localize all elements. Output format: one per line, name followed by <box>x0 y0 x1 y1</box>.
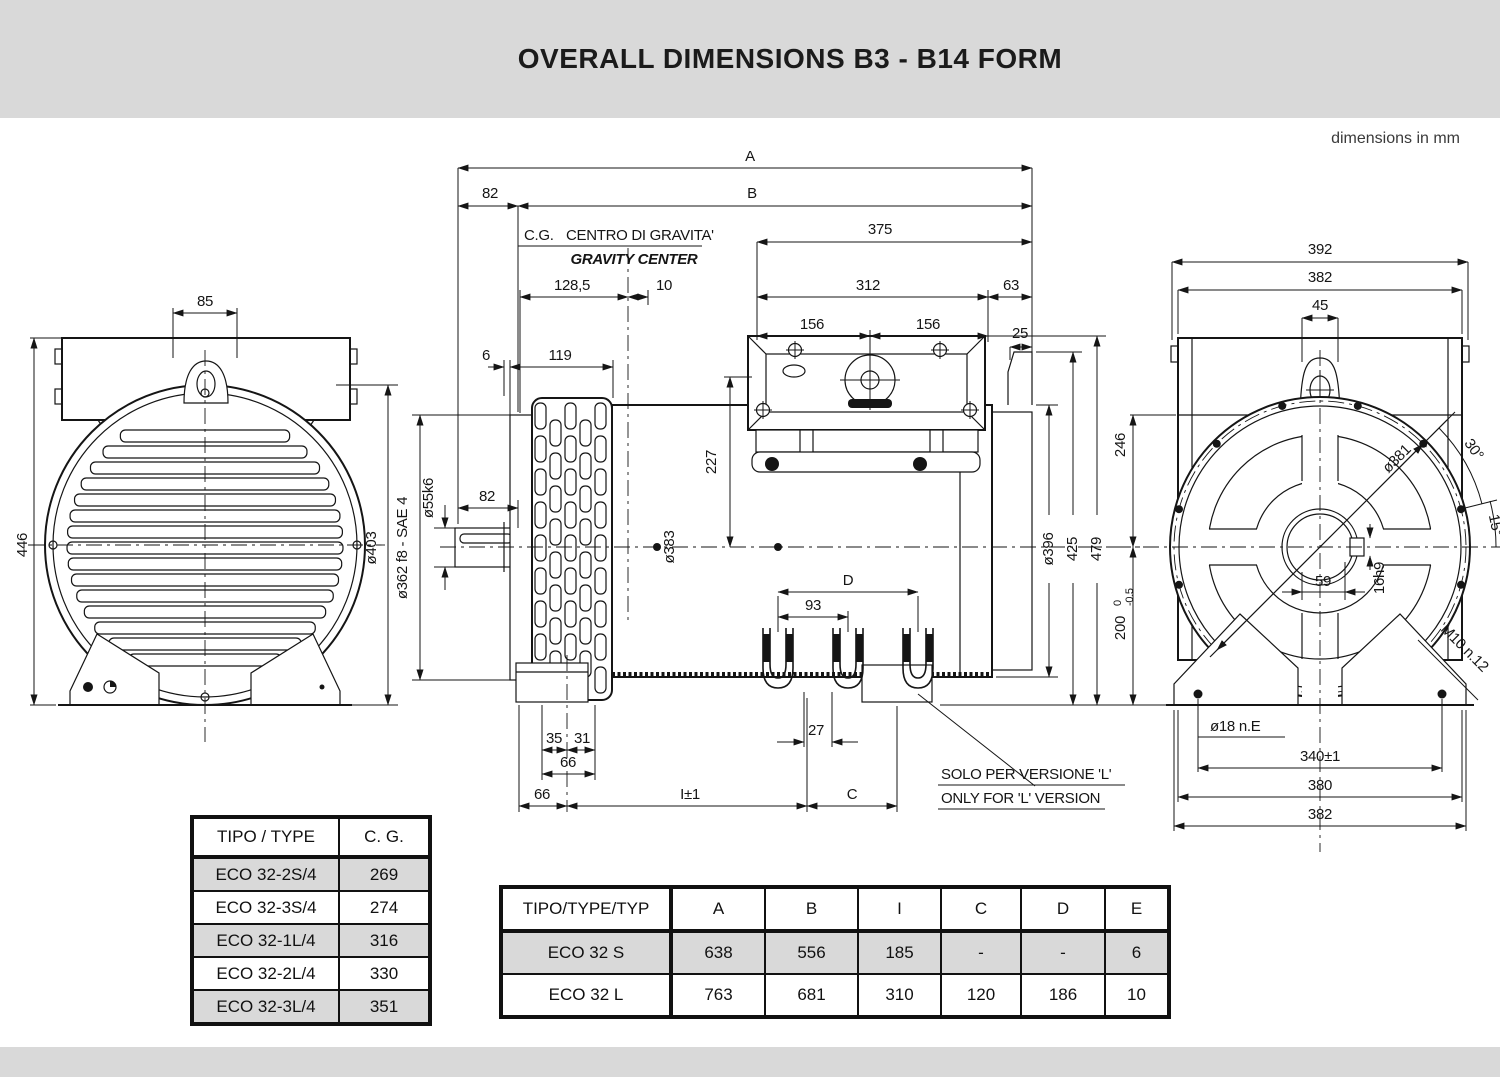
dim-6: 6 <box>482 347 490 364</box>
dim-10: 10 <box>656 277 672 294</box>
dim-63: 63 <box>1003 277 1019 294</box>
cell: 186 <box>1021 974 1105 1017</box>
dim-200: 200 <box>1112 616 1129 640</box>
header-cell: A <box>671 887 765 931</box>
cg-english: GRAVITY CENTER <box>571 251 698 268</box>
dim-45: 45 <box>1312 297 1328 314</box>
dim-A: A <box>745 148 755 165</box>
dim-227: 227 <box>703 450 720 474</box>
dim-200-tol-lo: -0.5 <box>1124 588 1136 606</box>
cell-cg: 330 <box>339 957 430 990</box>
cell: 185 <box>858 931 941 974</box>
cell: 10 <box>1105 974 1169 1017</box>
cg-table: TIPO / TYPE C. G. ECO 32-2S/4 269 ECO 32… <box>190 815 432 1026</box>
note-italian: SOLO PER VERSIONE 'L' <box>941 766 1112 783</box>
dim-156-a: 156 <box>800 316 824 333</box>
table-row: ECO 32 S 638 556 185 - - 6 <box>501 931 1169 974</box>
cell-type: ECO 32-2L/4 <box>192 957 339 990</box>
cell-type: ECO 32-2S/4 <box>192 857 339 891</box>
cg-table-header-type: TIPO / TYPE <box>192 817 339 857</box>
dim-392: 392 <box>1308 241 1332 258</box>
cell-cg: 274 <box>339 891 430 924</box>
table-row: ECO 32-3S/4 274 <box>192 891 430 924</box>
terminal-box-side <box>748 336 985 472</box>
header-cell: D <box>1021 887 1105 931</box>
cell: 310 <box>858 974 941 1017</box>
dim-119: 119 <box>548 347 571 364</box>
dim-C: C <box>847 786 858 803</box>
dim-382-top: 382 <box>1308 269 1332 286</box>
dimension-table: TIPO/TYPE/TYP A B I C D E ECO 32 S 638 5… <box>499 885 1171 1019</box>
dim-flange: ø362 f8 - SAE 4 <box>394 497 411 599</box>
table-row: ECO 32-3L/4 351 <box>192 990 430 1024</box>
table-row: ECO 32-2L/4 330 <box>192 957 430 990</box>
dim-66-b: 66 <box>534 786 550 803</box>
note-english: ONLY FOR 'L' VERSION <box>941 790 1100 807</box>
dim-246: 246 <box>1112 433 1129 457</box>
header-cell: B <box>765 887 858 931</box>
dim-25: 25 <box>1012 325 1028 342</box>
dim-18: ø18 n.E <box>1210 718 1261 735</box>
cell-cg: 351 <box>339 990 430 1024</box>
drawing-sheet: OVERALL DIMENSIONS B3 - B14 FORM dimensi… <box>0 0 1500 1077</box>
dim-35: 35 <box>546 730 562 747</box>
dim-200-group: 200 0 -0.5 <box>1112 588 1136 640</box>
dim-383: ø383 <box>661 531 678 564</box>
dim-shaft: ø55k6 <box>420 478 437 518</box>
header-cell: E <box>1105 887 1169 931</box>
dim-31: 31 <box>574 730 590 747</box>
side-front-foot <box>516 663 588 702</box>
cell: 681 <box>765 974 858 1017</box>
table-row: ECO 32-2S/4 269 <box>192 857 430 891</box>
dim-479: 479 <box>1088 537 1105 561</box>
table-row: ECO 32-1L/4 316 <box>192 924 430 957</box>
dim-66-a: 66 <box>560 754 576 771</box>
cell: 638 <box>671 931 765 974</box>
dim-312: 312 <box>856 277 880 294</box>
cell: 556 <box>765 931 858 974</box>
dim-128-5: 128,5 <box>554 277 590 294</box>
dim-16h9: 16h9 <box>1371 562 1388 594</box>
dim-396: ø396 <box>1040 533 1057 566</box>
dim-85: 85 <box>197 293 213 310</box>
cell-cg: 316 <box>339 924 430 957</box>
cg-abbr: C.G. <box>524 227 554 244</box>
header-cell: C <box>941 887 1021 931</box>
dim-93: 93 <box>805 597 821 614</box>
dim-15deg: 15° <box>1485 513 1500 538</box>
cell: 6 <box>1105 931 1169 974</box>
dim-200-tol-hi: 0 <box>1112 600 1124 606</box>
dim-D: D <box>843 572 854 589</box>
dim-446: 446 <box>14 533 31 557</box>
dim-82-shaft: 82 <box>479 488 495 505</box>
cell: ECO 32 L <box>501 974 671 1017</box>
dim-27: 27 <box>808 722 824 739</box>
cell-cg: 269 <box>339 857 430 891</box>
box-flange <box>756 430 978 452</box>
cell: 763 <box>671 974 765 1017</box>
cell: - <box>1021 931 1105 974</box>
front-view: 85 446 <box>14 293 385 742</box>
cell-type: ECO 32-1L/4 <box>192 924 339 957</box>
dim-375: 375 <box>868 221 892 238</box>
table-row: ECO 32 L 763 681 310 120 186 10 <box>501 974 1169 1017</box>
dim-403: ø403 <box>363 532 380 565</box>
dim-30deg: 30° <box>1460 436 1487 464</box>
dim-I: I±1 <box>680 786 700 803</box>
cg-table-header-cg: C. G. <box>339 817 430 857</box>
cell-type: ECO 32-3L/4 <box>192 990 339 1024</box>
dim-59: 59 <box>1315 573 1331 590</box>
rear-view: 392 382 45 246 200 0 -0.5 ø381 <box>1085 241 1500 852</box>
dim-425: 425 <box>1064 537 1081 561</box>
dim-340: 340±1 <box>1300 748 1340 765</box>
table-header-row: TIPO/TYPE/TYP A B I C D E <box>501 887 1169 931</box>
dim-82-left: 82 <box>482 185 498 202</box>
cg-italian: CENTRO DI GRAVITA' <box>566 227 714 244</box>
dim-380: 380 <box>1308 777 1332 794</box>
dim-382-bottom: 382 <box>1308 806 1332 823</box>
side-view: A 82 B C.G. CENTRO DI GRAVITA' GRAVITY C… <box>336 148 1140 812</box>
dim-156-b: 156 <box>916 316 940 333</box>
header-cell: I <box>858 887 941 931</box>
cell: ECO 32 S <box>501 931 671 974</box>
box-rail <box>752 452 980 472</box>
header-cell: TIPO/TYPE/TYP <box>501 887 671 931</box>
air-intake-grille <box>535 403 606 693</box>
cell: - <box>941 931 1021 974</box>
cell: 120 <box>941 974 1021 1017</box>
dim-B: B <box>747 185 757 202</box>
cell-type: ECO 32-3S/4 <box>192 891 339 924</box>
